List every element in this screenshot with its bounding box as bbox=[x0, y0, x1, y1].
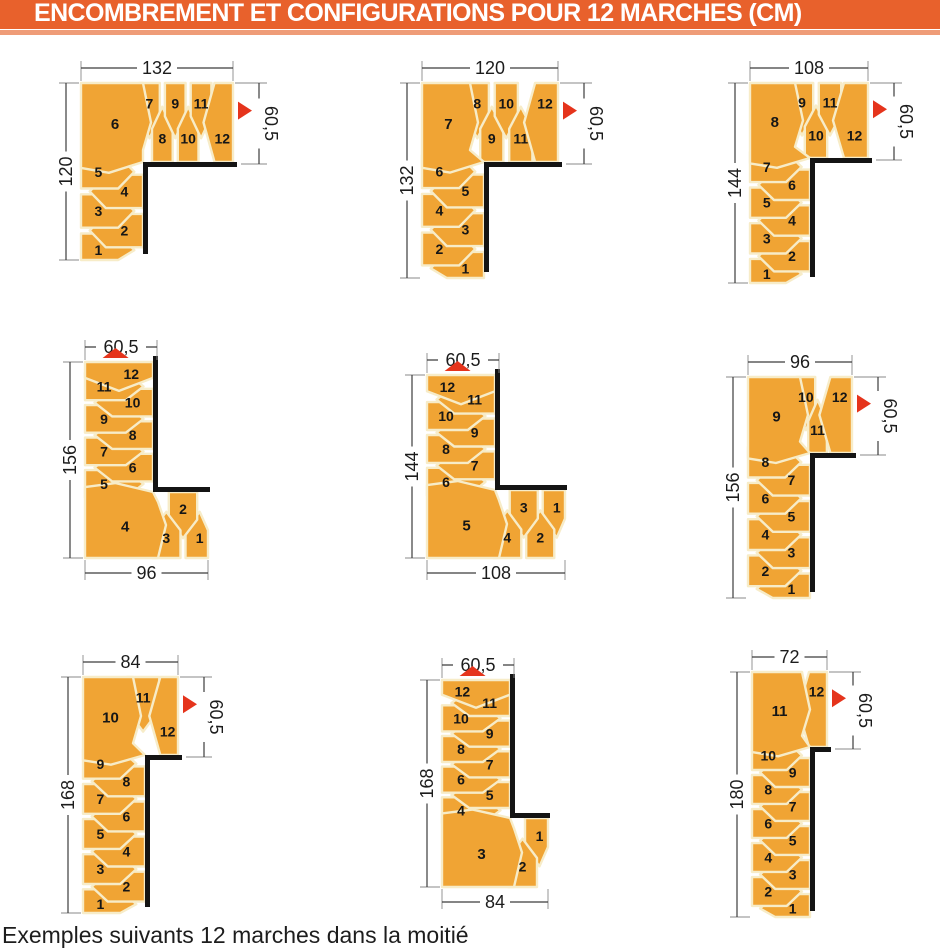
staircase-diagram-9: 1234567891012117218060,5 bbox=[727, 646, 875, 917]
dimension-label: 132 bbox=[397, 165, 417, 195]
step-number-12: 12 bbox=[832, 389, 848, 405]
step-number-1: 1 bbox=[96, 896, 104, 912]
step-number-12: 12 bbox=[847, 128, 863, 144]
step-number-9: 9 bbox=[471, 425, 479, 441]
step-number-11: 11 bbox=[482, 695, 497, 711]
dimension-label: 132 bbox=[142, 58, 172, 78]
step-number-11: 11 bbox=[136, 689, 151, 705]
step-number-9: 9 bbox=[486, 726, 494, 742]
dimension-label: 144 bbox=[725, 168, 745, 198]
step-number-5: 5 bbox=[94, 164, 102, 180]
dimension-label: 60,5 bbox=[206, 699, 226, 734]
step-number-1: 1 bbox=[536, 828, 544, 844]
wall-line bbox=[513, 674, 551, 816]
step-number-4: 4 bbox=[457, 802, 465, 818]
step-number-4: 4 bbox=[788, 213, 796, 229]
step-number-9: 9 bbox=[488, 130, 496, 146]
step-number-2: 2 bbox=[123, 879, 131, 895]
dimension-label: 60,5 bbox=[880, 398, 900, 433]
step-number-3: 3 bbox=[788, 545, 796, 561]
step-number-5: 5 bbox=[486, 787, 494, 803]
step-number-7: 7 bbox=[788, 472, 796, 488]
step-number-7: 7 bbox=[444, 116, 452, 133]
step-number-7: 7 bbox=[100, 443, 108, 459]
step-number-12: 12 bbox=[214, 130, 230, 146]
dimension-label: 84 bbox=[485, 892, 505, 912]
step-number-2: 2 bbox=[761, 563, 769, 579]
step-number-4: 4 bbox=[764, 850, 772, 866]
step-number-8: 8 bbox=[764, 782, 772, 798]
step-number-2: 2 bbox=[536, 530, 544, 546]
step-number-2: 2 bbox=[519, 858, 527, 874]
staircase-diagram-6: 1234567810111299615660,5 bbox=[723, 351, 900, 598]
dimension-label: 84 bbox=[120, 652, 140, 672]
step-number-7: 7 bbox=[789, 799, 797, 815]
step-number-1: 1 bbox=[763, 266, 771, 282]
dimension-label: 156 bbox=[723, 472, 743, 502]
step-number-2: 2 bbox=[435, 241, 443, 257]
dimension-label: 108 bbox=[794, 58, 824, 78]
dimension-label: 144 bbox=[402, 451, 422, 481]
step-number-10: 10 bbox=[125, 395, 141, 411]
step-number-9: 9 bbox=[772, 409, 780, 426]
staircase-diagram-1: 12345789101112613212060,5 bbox=[56, 57, 281, 260]
dimension-label: 168 bbox=[58, 780, 78, 810]
dimension-label: 168 bbox=[417, 768, 437, 798]
step-number-5: 5 bbox=[462, 517, 470, 534]
step-number-9: 9 bbox=[100, 411, 108, 427]
step-number-6: 6 bbox=[764, 816, 772, 832]
step-number-7: 7 bbox=[471, 457, 479, 473]
step-number-6: 6 bbox=[111, 116, 119, 133]
step-number-10: 10 bbox=[499, 96, 515, 112]
step-number-8: 8 bbox=[123, 773, 131, 789]
step-number-12: 12 bbox=[537, 96, 553, 112]
staircase-configurations-figure: 12345789101112613212060,5123456891011127… bbox=[0, 0, 940, 940]
step-number-6: 6 bbox=[788, 177, 796, 193]
step-number-7: 7 bbox=[146, 96, 154, 112]
step-number-5: 5 bbox=[462, 183, 470, 199]
step-number-11: 11 bbox=[194, 96, 209, 112]
step-number-7: 7 bbox=[763, 159, 771, 175]
step-number-9: 9 bbox=[789, 765, 797, 781]
step-number-6: 6 bbox=[435, 164, 443, 180]
step-number-2: 2 bbox=[764, 884, 772, 900]
dimension-label: 96 bbox=[790, 352, 810, 372]
wall-line bbox=[487, 165, 563, 273]
wall-line bbox=[148, 758, 183, 908]
step-number-4: 4 bbox=[761, 527, 769, 543]
step-number-10: 10 bbox=[808, 128, 824, 144]
step-number-8: 8 bbox=[158, 130, 166, 146]
step-number-11: 11 bbox=[823, 95, 838, 111]
step-number-5: 5 bbox=[96, 826, 104, 842]
step-number-2: 2 bbox=[121, 223, 129, 239]
step-number-7: 7 bbox=[96, 791, 104, 807]
step-number-12: 12 bbox=[455, 683, 471, 699]
step-number-11: 11 bbox=[810, 422, 825, 438]
step-number-10: 10 bbox=[180, 130, 196, 146]
wall-line bbox=[813, 456, 857, 593]
staircase-diagram-2: 12345689101112712013260,5 bbox=[397, 57, 606, 278]
step-number-6: 6 bbox=[457, 772, 465, 788]
step-number-7: 7 bbox=[486, 756, 494, 772]
step-number-3: 3 bbox=[462, 222, 470, 238]
dimension-label: 96 bbox=[136, 563, 156, 583]
step-number-2: 2 bbox=[788, 248, 796, 264]
step-number-8: 8 bbox=[761, 454, 769, 470]
wall-line bbox=[813, 161, 873, 278]
step-number-4: 4 bbox=[121, 518, 130, 535]
step-number-1: 1 bbox=[462, 260, 470, 276]
step-number-10: 10 bbox=[438, 408, 454, 424]
step-number-1: 1 bbox=[553, 500, 561, 516]
dimension-label: 60,5 bbox=[586, 106, 606, 141]
staircase-diagram-4: 12356789101112460,515696 bbox=[60, 336, 210, 583]
step-number-1: 1 bbox=[94, 242, 102, 258]
step-number-4: 4 bbox=[121, 183, 129, 199]
step-number-9: 9 bbox=[171, 96, 179, 112]
step-number-6: 6 bbox=[761, 490, 769, 506]
step-number-3: 3 bbox=[789, 867, 797, 883]
step-number-8: 8 bbox=[473, 96, 481, 112]
step-number-5: 5 bbox=[789, 833, 797, 849]
dimension-label: 120 bbox=[56, 156, 76, 186]
step-number-11: 11 bbox=[772, 703, 788, 720]
step-number-6: 6 bbox=[442, 474, 450, 490]
step-number-11: 11 bbox=[513, 130, 528, 146]
step-number-12: 12 bbox=[123, 366, 139, 382]
bottom-caption: Exemples suivants 12 marches dans la moi… bbox=[2, 921, 932, 949]
step-number-4: 4 bbox=[435, 202, 443, 218]
step-number-8: 8 bbox=[442, 441, 450, 457]
staircase-diagram-5: 12346789101112560,5144108 bbox=[402, 349, 567, 583]
step-number-4: 4 bbox=[123, 844, 131, 860]
step-number-9: 9 bbox=[798, 95, 806, 111]
step-number-3: 3 bbox=[162, 530, 170, 546]
staircase-diagram-3: 12345679101112810814460,5 bbox=[725, 57, 916, 283]
dimension-label: 108 bbox=[481, 563, 511, 583]
dimension-label: 60,5 bbox=[896, 104, 916, 139]
step-number-4: 4 bbox=[503, 530, 511, 546]
step-number-3: 3 bbox=[520, 500, 528, 516]
step-number-10: 10 bbox=[760, 748, 776, 764]
step-number-5: 5 bbox=[100, 476, 108, 492]
step-number-10: 10 bbox=[798, 389, 814, 405]
step-number-12: 12 bbox=[160, 724, 176, 740]
step-number-8: 8 bbox=[129, 427, 137, 443]
dimension-label: 156 bbox=[60, 445, 80, 475]
step-number-10: 10 bbox=[102, 710, 119, 727]
step-number-5: 5 bbox=[763, 195, 771, 211]
step-number-11: 11 bbox=[97, 378, 112, 394]
step-number-5: 5 bbox=[788, 508, 796, 524]
step-number-12: 12 bbox=[440, 379, 456, 395]
step-number-9: 9 bbox=[96, 756, 104, 772]
dimension-label: 60,5 bbox=[855, 693, 875, 728]
step-number-10: 10 bbox=[453, 710, 469, 726]
step-number-3: 3 bbox=[96, 861, 104, 877]
wall-line bbox=[498, 369, 568, 488]
step-number-12: 12 bbox=[809, 684, 825, 700]
step-number-8: 8 bbox=[457, 741, 465, 757]
step-number-3: 3 bbox=[477, 846, 485, 863]
step-number-2: 2 bbox=[179, 501, 187, 517]
step-number-8: 8 bbox=[771, 114, 779, 131]
staircase-diagram-8: 12456789101112360,516884 bbox=[417, 654, 550, 912]
step-number-6: 6 bbox=[129, 460, 137, 476]
wall-line bbox=[146, 165, 238, 255]
dimension-label: 120 bbox=[475, 58, 505, 78]
step-number-3: 3 bbox=[94, 203, 102, 219]
step-number-1: 1 bbox=[196, 530, 204, 546]
step-number-3: 3 bbox=[763, 230, 771, 246]
wall-line bbox=[813, 750, 832, 912]
dimension-label: 180 bbox=[727, 779, 747, 809]
dimension-label: 60,5 bbox=[261, 106, 281, 141]
step-number-1: 1 bbox=[789, 901, 797, 917]
step-number-1: 1 bbox=[788, 581, 796, 597]
step-number-11: 11 bbox=[467, 392, 482, 408]
staircase-diagram-7: 1234567891112108416860,5 bbox=[58, 651, 226, 913]
wall-line bbox=[156, 356, 211, 490]
dimension-label: 72 bbox=[779, 647, 799, 667]
step-number-6: 6 bbox=[123, 808, 131, 824]
